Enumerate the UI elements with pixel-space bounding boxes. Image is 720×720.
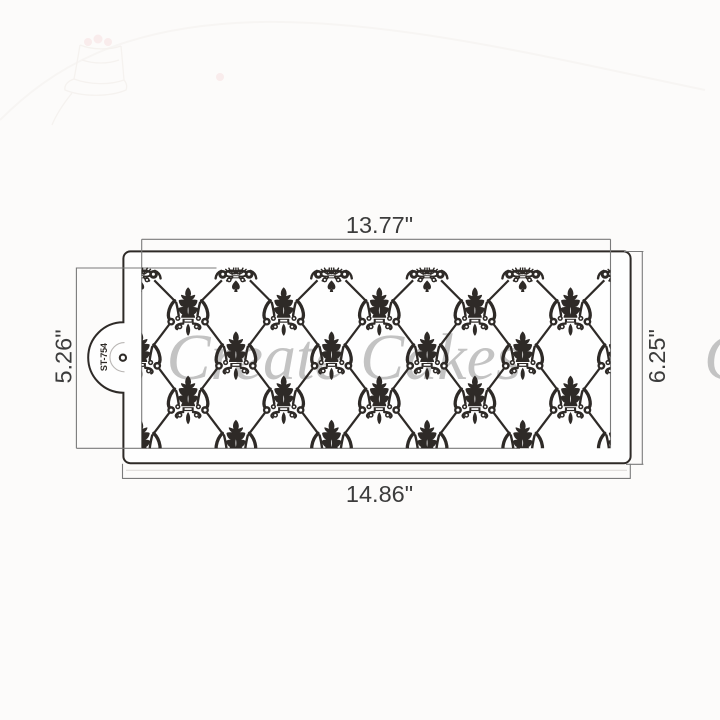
svg-text:C: C	[704, 321, 720, 394]
svg-text:ST-754: ST-754	[99, 343, 109, 371]
svg-text:Create Cakes: Create Cakes	[167, 321, 522, 394]
svg-text:14.86": 14.86"	[346, 481, 413, 507]
svg-text:13.77": 13.77"	[346, 212, 413, 238]
svg-text:5.26": 5.26"	[51, 329, 77, 383]
svg-text:6.25": 6.25"	[644, 329, 670, 383]
